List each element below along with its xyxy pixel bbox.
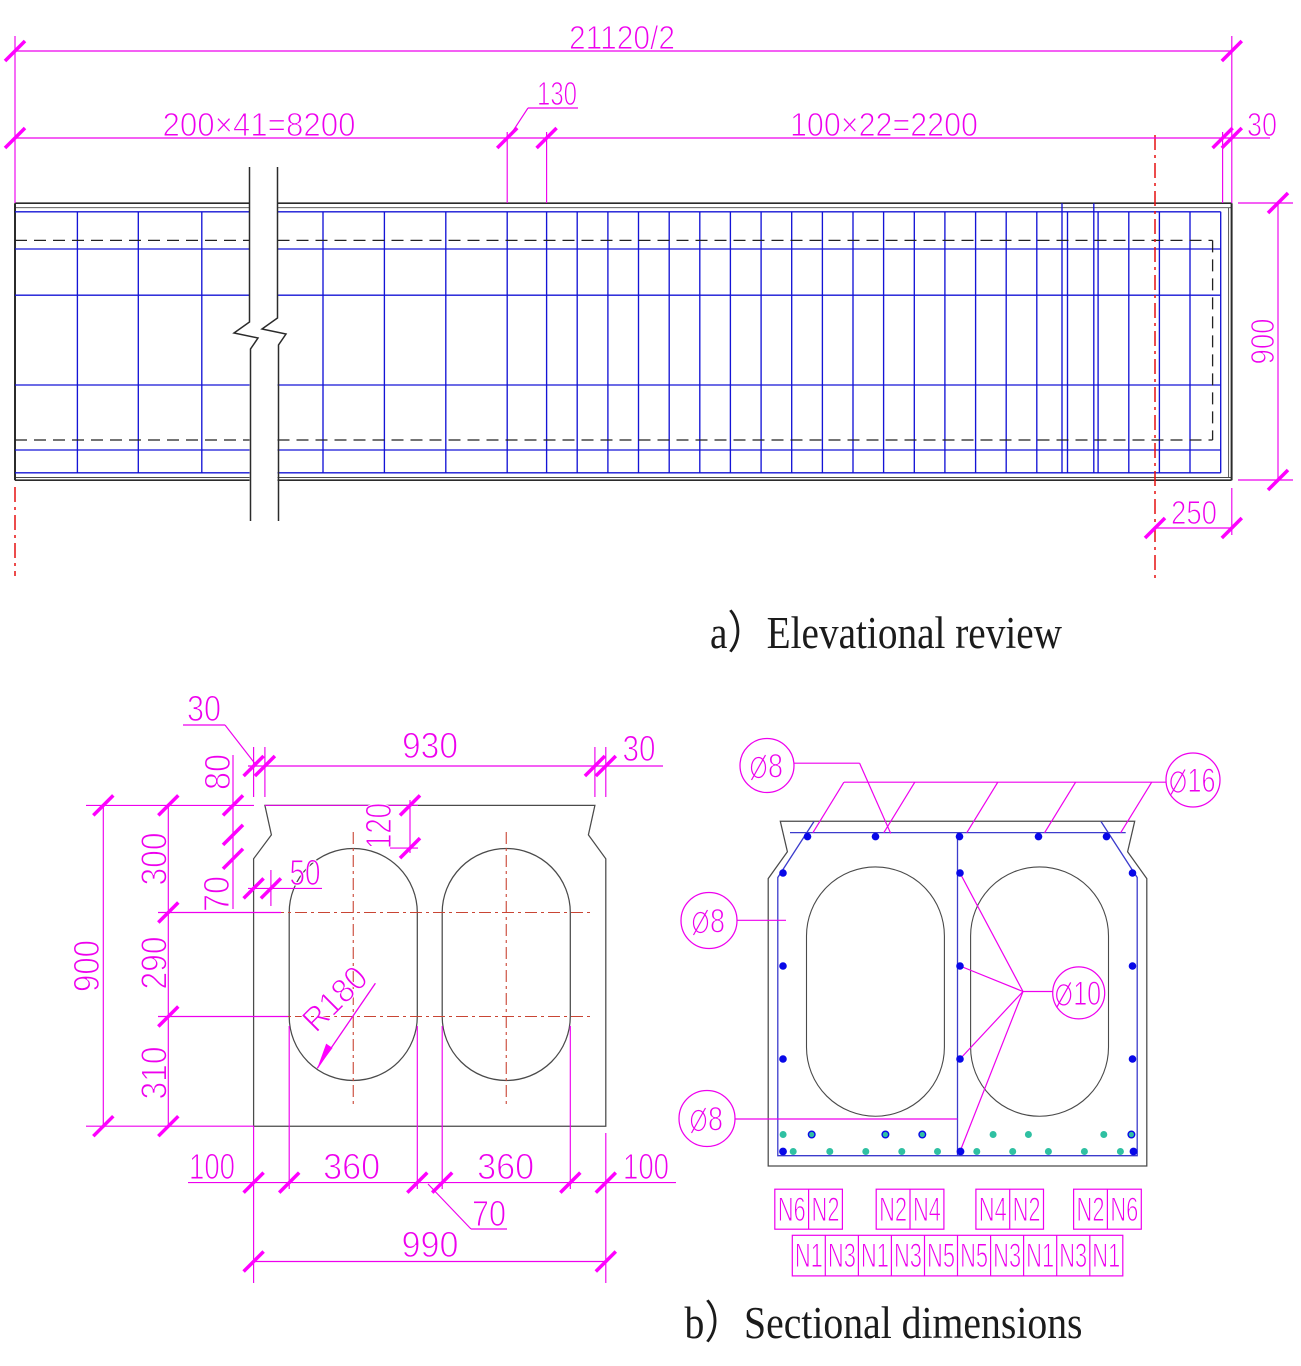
svg-text:30: 30 bbox=[187, 688, 221, 729]
svg-text:N2: N2 bbox=[812, 1191, 840, 1229]
svg-text:N1: N1 bbox=[1026, 1237, 1054, 1275]
svg-text:360: 360 bbox=[477, 1146, 534, 1187]
svg-text:16: 16 bbox=[1188, 762, 1216, 800]
svg-text:N4: N4 bbox=[913, 1191, 941, 1229]
svg-text:250: 250 bbox=[1171, 494, 1217, 531]
svg-text:30: 30 bbox=[623, 728, 656, 769]
svg-text:120: 120 bbox=[358, 803, 399, 849]
svg-text:N1: N1 bbox=[795, 1237, 823, 1275]
svg-text:N3: N3 bbox=[1059, 1237, 1087, 1275]
svg-text:N4: N4 bbox=[979, 1191, 1007, 1229]
svg-text:8: 8 bbox=[710, 903, 725, 941]
svg-text:N2: N2 bbox=[879, 1191, 907, 1229]
svg-text:900: 900 bbox=[1244, 319, 1281, 365]
svg-text:100: 100 bbox=[623, 1146, 669, 1187]
svg-text:300: 300 bbox=[134, 833, 175, 886]
svg-text:100: 100 bbox=[189, 1146, 235, 1187]
svg-text:990: 990 bbox=[402, 1224, 459, 1265]
svg-text:N1: N1 bbox=[861, 1237, 889, 1275]
svg-text:N5: N5 bbox=[960, 1237, 988, 1275]
svg-text:N2: N2 bbox=[1013, 1191, 1041, 1229]
svg-text:30: 30 bbox=[1247, 106, 1277, 143]
svg-text:b）Sectional dimensions: b）Sectional dimensions bbox=[685, 1298, 1083, 1348]
svg-text:130: 130 bbox=[537, 75, 577, 112]
svg-text:a）Elevational review: a）Elevational review bbox=[710, 608, 1062, 658]
svg-text:200×41=8200: 200×41=8200 bbox=[163, 106, 356, 143]
svg-text:8: 8 bbox=[768, 748, 783, 786]
svg-text:N6: N6 bbox=[778, 1191, 806, 1229]
svg-text:930: 930 bbox=[402, 725, 458, 766]
svg-text:50: 50 bbox=[290, 852, 321, 893]
svg-text:N6: N6 bbox=[1110, 1191, 1138, 1229]
svg-text:21120/2: 21120/2 bbox=[569, 19, 675, 56]
svg-text:8: 8 bbox=[708, 1101, 723, 1139]
svg-text:N2: N2 bbox=[1077, 1191, 1105, 1229]
svg-text:70: 70 bbox=[196, 876, 237, 912]
svg-text:N3: N3 bbox=[993, 1237, 1021, 1275]
svg-text:70: 70 bbox=[472, 1193, 506, 1234]
svg-text:360: 360 bbox=[323, 1146, 380, 1187]
svg-text:100×22=2200: 100×22=2200 bbox=[790, 106, 978, 143]
svg-text:N3: N3 bbox=[894, 1237, 922, 1275]
svg-text:310: 310 bbox=[134, 1047, 175, 1100]
svg-text:80: 80 bbox=[197, 754, 238, 790]
svg-text:N1: N1 bbox=[1092, 1237, 1120, 1275]
svg-text:10: 10 bbox=[1073, 975, 1101, 1013]
svg-text:N5: N5 bbox=[927, 1237, 955, 1275]
svg-text:N3: N3 bbox=[828, 1237, 856, 1275]
svg-text:290: 290 bbox=[134, 937, 175, 990]
svg-text:900: 900 bbox=[66, 940, 107, 992]
